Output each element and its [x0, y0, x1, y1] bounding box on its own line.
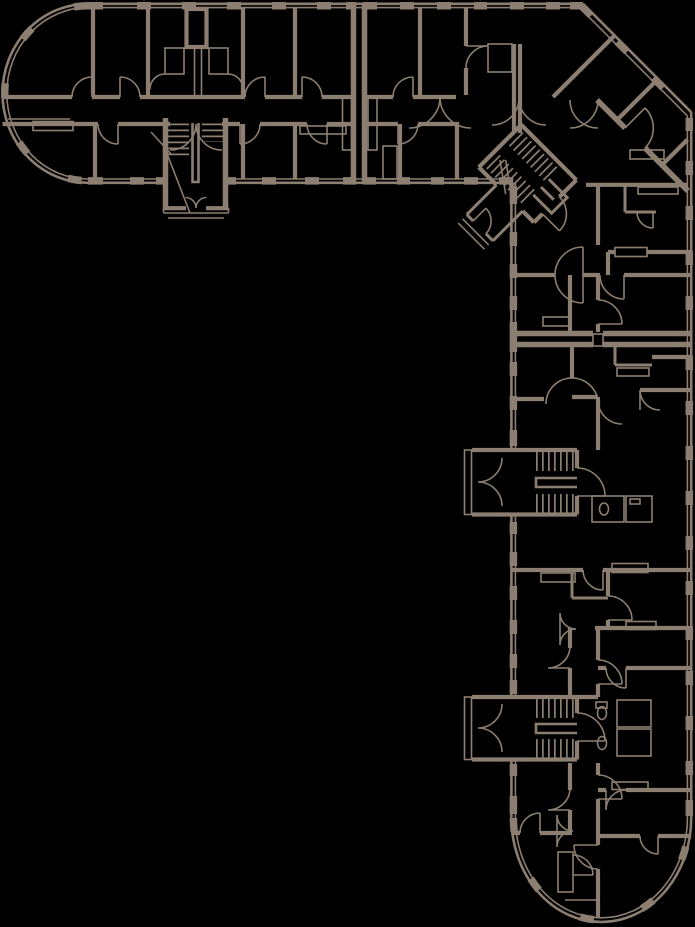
bay-window-piers [5, 6, 88, 181]
north-wing-corridor-walls [3, 97, 458, 124]
service-shaft [187, 9, 207, 47]
corner-porch-steps [458, 219, 488, 249]
west-stairwell-1 [465, 450, 606, 515]
stair-treads [536, 462, 577, 504]
stair-well-core [536, 724, 577, 733]
interior-window [615, 248, 647, 257]
north-wing-partitions [93, 8, 520, 179]
sink-fixture [630, 499, 640, 504]
entrance-porch [465, 697, 472, 760]
expansion-joint-north [343, 4, 378, 183]
wardrobe [541, 573, 575, 582]
closet-left [165, 48, 184, 74]
entrance-double-doors [478, 458, 502, 506]
interior-window [617, 368, 649, 376]
duct-box [383, 146, 397, 179]
floor-plan-drawing [0, 0, 695, 927]
bathroom-cluster-1 [592, 496, 652, 522]
closet-b [488, 44, 512, 72]
floor-plan-page [0, 0, 695, 927]
joint-connector [593, 334, 603, 346]
east-wing-bottom-apartment [511, 763, 691, 919]
toilet-fixture [598, 737, 607, 750]
toilet-fixture [600, 503, 609, 515]
bay-window-piers [513, 818, 689, 920]
west-rounded-bay [3, 4, 89, 183]
diagonal-inner-wall [597, 100, 688, 191]
east-wing-upper-apartment [511, 150, 691, 332]
bathroom-cluster-2 [596, 700, 651, 756]
main-entrance-vestibule [163, 183, 229, 218]
diagonal-window-piers [581, 6, 689, 114]
closet [558, 852, 573, 892]
stair-treads [536, 709, 577, 749]
corner-section [441, 4, 692, 278]
stair-break-line [151, 132, 190, 213]
diagonal-room-dividers [553, 36, 688, 166]
east-wing-row-1 [511, 346, 691, 450]
joint-closet [543, 317, 570, 326]
closet-right [209, 48, 228, 74]
east-wing-middle-apartments [511, 564, 691, 698]
west-stairwell-2 [465, 697, 606, 760]
expansion-joint-east [511, 317, 691, 346]
north-wing-shell [88, 4, 583, 183]
stair-well-core [536, 478, 577, 487]
entrance-double-doors [478, 704, 502, 752]
entrance-double-doors [186, 198, 207, 209]
main-stairwell [151, 118, 226, 213]
south-rounded-bay [511, 818, 691, 922]
wall-niche [638, 187, 678, 194]
entrance-porch [465, 450, 472, 515]
